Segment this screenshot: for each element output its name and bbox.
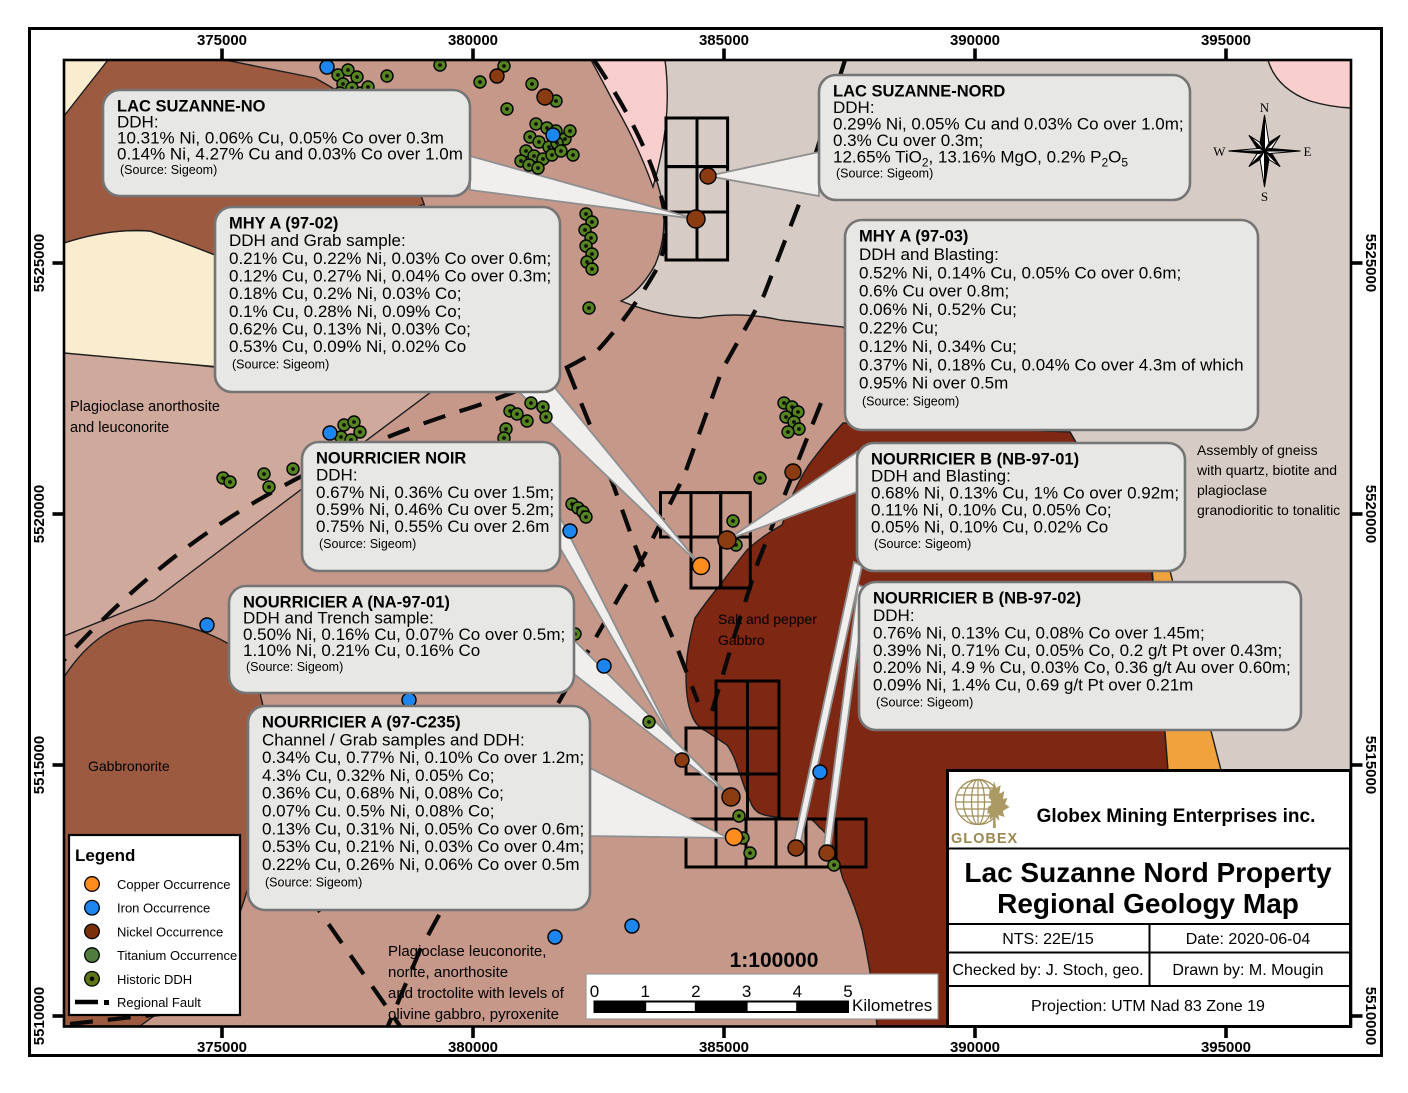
svg-text:0.76% Ni, 0.13% Cu, 0.08% Co o: 0.76% Ni, 0.13% Cu, 0.08% Co over 1.45m; [873,623,1205,642]
svg-text:375000: 375000 [197,1039,247,1056]
svg-text:4: 4 [793,982,802,1001]
svg-text:(Source: Sigeom): (Source: Sigeom) [319,537,416,551]
svg-text:5510000: 5510000 [31,987,48,1045]
svg-text:Checked by: J. Stoch, geo.: Checked by: J. Stoch, geo. [952,962,1143,979]
svg-text:390000: 390000 [950,1039,1000,1056]
svg-text:NOURRICIER A (97-C235): NOURRICIER A (97-C235) [262,714,461,732]
svg-text:Nickel Occurrence: Nickel Occurrence [117,924,223,939]
svg-text:DDH and Blasting:: DDH and Blasting: [859,245,999,264]
svg-text:(Source: Sigeom): (Source: Sigeom) [246,660,343,674]
svg-text:5525000: 5525000 [1362,234,1379,292]
svg-text:norite, anorthosite: norite, anorthosite [388,964,508,981]
svg-text:Channel / Grab samples and DDH: Channel / Grab samples and DDH: [262,730,525,749]
svg-text:380000: 380000 [448,32,498,49]
svg-text:0: 0 [590,982,599,1001]
svg-text:(Source: Sigeom): (Source: Sigeom) [265,875,362,889]
svg-text:plagioclase: plagioclase [1197,482,1267,498]
svg-text:0.21% Cu, 0.22% Ni, 0.03% Co o: 0.21% Cu, 0.22% Ni, 0.03% Co over 0.6m; [229,249,551,268]
svg-text:390000: 390000 [950,32,1000,49]
svg-text:NOURRICIER B (NB-97-02): NOURRICIER B (NB-97-02) [873,590,1081,608]
svg-text:(Source: Sigeom): (Source: Sigeom) [862,395,959,409]
svg-text:Gabbronorite: Gabbronorite [88,758,170,774]
svg-text:DDH:: DDH: [873,606,915,625]
svg-text:0.37% Ni, 0.18% Cu, 0.04% Co o: 0.37% Ni, 0.18% Cu, 0.04% Co over 4.3m o… [859,355,1244,374]
svg-text:Titanium Occurrence: Titanium Occurrence [117,948,237,963]
svg-text:395000: 395000 [1201,32,1251,49]
svg-text:0.22% Cu;: 0.22% Cu; [859,319,938,338]
svg-text:DDH and Grab sample:: DDH and Grab sample: [229,231,406,250]
svg-text:0.95% Ni over 0.5m: 0.95% Ni over 0.5m [859,374,1008,393]
svg-text:2: 2 [691,982,700,1001]
svg-text:3: 3 [742,982,751,1001]
svg-text:0.05% Ni, 0.10% Cu, 0.02% Co: 0.05% Ni, 0.10% Cu, 0.02% Co [871,518,1108,537]
svg-text:Plagioclase anorthosite: Plagioclase anorthosite [70,399,220,415]
svg-text:0.07% Cu. 0.5% Ni, 0.08% Co;: 0.07% Cu. 0.5% Ni, 0.08% Co; [262,802,494,821]
svg-text:5520000: 5520000 [31,485,48,543]
svg-text:0.18% Cu, 0.2% Ni, 0.03% Co;: 0.18% Cu, 0.2% Ni, 0.03% Co; [229,284,461,303]
svg-text:1:100000: 1:100000 [730,949,819,972]
svg-text:395000: 395000 [1201,1039,1251,1056]
svg-text:380000: 380000 [448,1039,498,1056]
svg-text:5525000: 5525000 [31,234,48,292]
svg-text:and troctolite with levels of: and troctolite with levels of [388,985,565,1002]
svg-text:NTS: 22E/15: NTS: 22E/15 [1002,931,1094,948]
svg-text:olivine gabbro, pyroxenite: olivine gabbro, pyroxenite [388,1006,559,1023]
svg-text:Historic DDH: Historic DDH [117,972,192,987]
svg-text:0.20% Ni, 4.9 % Cu, 0.03% Co,: 0.20% Ni, 4.9 % Cu, 0.03% Co, 0.36 g/t A… [873,658,1291,677]
svg-text:0.53% Cu, 0.21% Ni, 0.03% Co o: 0.53% Cu, 0.21% Ni, 0.03% Co over 0.4m; [262,837,584,856]
svg-text:385000: 385000 [699,1039,749,1056]
svg-text:5520000: 5520000 [1362,485,1379,543]
svg-text:5515000: 5515000 [1362,736,1379,794]
svg-text:Projection: UTM Nad 83 Zone 19: Projection: UTM Nad 83 Zone 19 [1031,998,1265,1015]
svg-text:E: E [1304,144,1312,159]
svg-text:0.22% Cu, 0.26% Ni, 0.06% Co o: 0.22% Cu, 0.26% Ni, 0.06% Co over 0.5m [262,855,580,874]
svg-text:0.62% Cu, 0.13% Ni, 0.03% Co;: 0.62% Cu, 0.13% Ni, 0.03% Co; [229,320,471,339]
svg-text:Iron Occurrence: Iron Occurrence [117,901,210,916]
svg-text:Salt and pepper: Salt and pepper [718,611,817,627]
svg-text:MHY A (97-02): MHY A (97-02) [229,215,338,233]
svg-text:Copper Occurrence: Copper Occurrence [117,877,230,892]
svg-text:Regional Fault: Regional Fault [117,995,201,1010]
svg-text:granodioritic to tonalitic: granodioritic to tonalitic [1197,502,1340,518]
svg-text:0.67% Ni, 0.36% Cu over 1.5m;: 0.67% Ni, 0.36% Cu over 1.5m; [316,483,554,502]
svg-text:5510000: 5510000 [1362,987,1379,1045]
svg-text:0.14% Ni, 4.27% Cu and 0.03% C: 0.14% Ni, 4.27% Cu and 0.03% Co over 1.0… [117,145,463,164]
svg-text:W: W [1213,144,1226,159]
svg-text:Drawn by: M. Mougin: Drawn by: M. Mougin [1172,962,1323,979]
svg-text:(Source: Sigeom): (Source: Sigeom) [874,537,971,551]
svg-text:(Source: Sigeom): (Source: Sigeom) [120,163,217,177]
svg-text:0.52% Ni, 0.14% Cu, 0.05% Co o: 0.52% Ni, 0.14% Cu, 0.05% Co over 0.6m; [859,263,1181,282]
svg-text:0.09% Ni, 1.4% Cu, 0.69 g/t Pt: 0.09% Ni, 1.4% Cu, 0.69 g/t Pt over 0.21… [873,676,1193,695]
svg-text:0.12% Cu, 0.27% Ni, 0.04% Co o: 0.12% Cu, 0.27% Ni, 0.04% Co over 0.3m; [229,267,551,286]
svg-text:Plagioclase leuconorite,: Plagioclase leuconorite, [388,943,546,960]
svg-text:and leuconorite: and leuconorite [70,420,169,436]
svg-text:Legend: Legend [75,846,135,865]
svg-text:0.1% Cu, 0.28% Ni, 0.09% Co;: 0.1% Cu, 0.28% Ni, 0.09% Co; [229,302,461,321]
svg-text:0.12% Ni, 0.34% Cu;: 0.12% Ni, 0.34% Cu; [859,337,1017,356]
svg-text:GLOBEX: GLOBEX [951,831,1018,847]
svg-text:0.75% Ni, 0.55% Cu over 2.6m: 0.75% Ni, 0.55% Cu over 2.6m [316,517,549,536]
svg-text:375000: 375000 [197,32,247,49]
svg-text:0.53% Cu, 0.09% Ni, 0.02% Co: 0.53% Cu, 0.09% Ni, 0.02% Co [229,337,466,356]
svg-text:MHY A (97-03): MHY A (97-03) [859,228,968,246]
svg-text:Date: 2020-06-04: Date: 2020-06-04 [1186,931,1311,948]
svg-text:5515000: 5515000 [31,736,48,794]
svg-text:1: 1 [640,982,649,1001]
svg-text:Gabbro: Gabbro [718,632,765,648]
svg-text:0.6% Cu over 0.8m;: 0.6% Cu over 0.8m; [859,282,1009,301]
svg-text:1.10% Ni, 0.21% Cu, 0.16% Co: 1.10% Ni, 0.21% Cu, 0.16% Co [243,641,480,660]
svg-text:0.13% Cu, 0.31% Ni, 0.05% Co o: 0.13% Cu, 0.31% Ni, 0.05% Co over 0.6m; [262,819,584,838]
svg-text:S: S [1261,189,1268,204]
svg-text:with quartz, biotite and: with quartz, biotite and [1196,462,1337,478]
svg-text:Globex Mining Enterprises inc.: Globex Mining Enterprises inc. [1037,806,1316,827]
svg-text:4.3% Cu, 0.32% Ni, 0.05% Co;: 4.3% Cu, 0.32% Ni, 0.05% Co; [262,766,494,785]
svg-text:N: N [1260,100,1270,115]
svg-text:0.59% Ni, 0.46% Cu over 5.2m;: 0.59% Ni, 0.46% Cu over 5.2m; [316,500,554,519]
svg-text:(Source: Sigeom): (Source: Sigeom) [836,167,933,181]
svg-text:0.34% Cu, 0.77% Ni, 0.10% Co o: 0.34% Cu, 0.77% Ni, 0.10% Co over 1.2m; [262,748,584,767]
svg-text:(Source: Sigeom): (Source: Sigeom) [232,357,329,371]
svg-text:0.36% Cu, 0.68% Ni, 0.08% Co;: 0.36% Cu, 0.68% Ni, 0.08% Co; [262,784,504,803]
svg-text:Assembly of gneiss: Assembly of gneiss [1197,442,1318,458]
svg-text:Regional Geology Map: Regional Geology Map [997,888,1299,919]
svg-text:385000: 385000 [699,32,749,49]
svg-text:(Source: Sigeom): (Source: Sigeom) [876,696,973,710]
svg-text:Lac Suzanne Nord Property: Lac Suzanne Nord Property [964,857,1332,888]
svg-text:Kilometres: Kilometres [852,996,932,1015]
svg-text:0.06% Ni, 0.52% Cu;: 0.06% Ni, 0.52% Cu; [859,300,1017,319]
svg-text:0.39% Ni, 0.71% Cu, 0.05% Co,: 0.39% Ni, 0.71% Cu, 0.05% Co, 0.2 g/t Pt… [873,641,1282,660]
